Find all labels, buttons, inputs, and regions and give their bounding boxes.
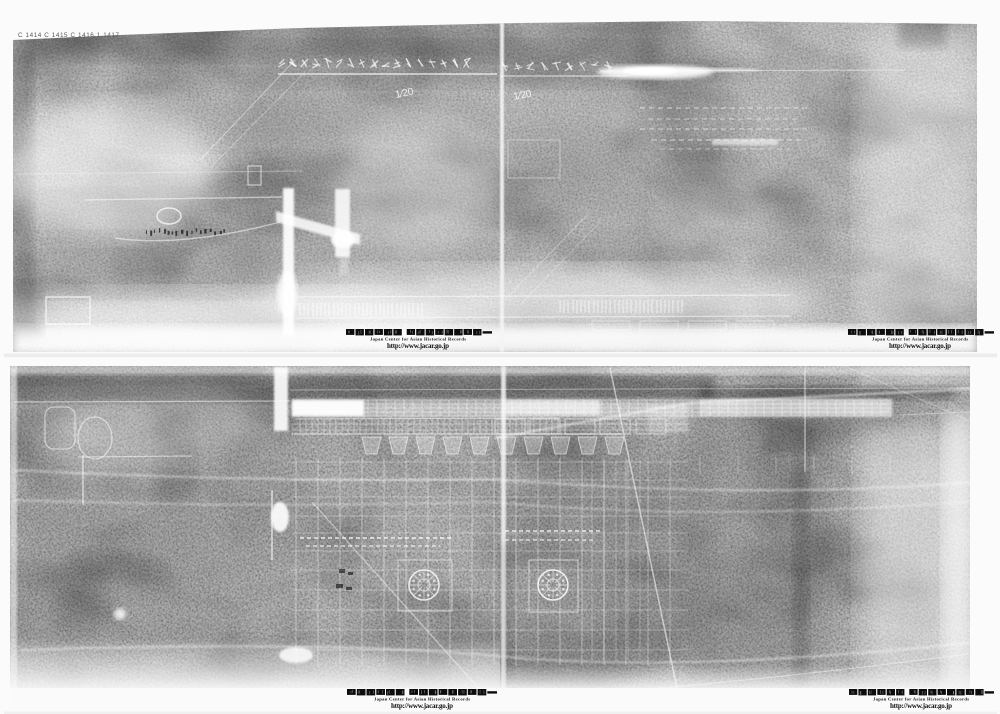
svg-text:Japan Center for Asian Histori: Japan Center for Asian Historical Record… — [873, 696, 969, 701]
svg-text:Japan Center for Asian Histori: Japan Center for Asian Historical Record… — [374, 696, 470, 701]
svg-text:Japan Center for Asian Histori: Japan Center for Asian Historical Record… — [872, 336, 968, 341]
svg-text:http://www.jacar.go.jp: http://www.jacar.go.jp — [387, 342, 449, 350]
svg-text:http://www.jacar.go.jp: http://www.jacar.go.jp — [890, 702, 952, 710]
svg-text:C 1414 C 1415 C 1416 1 1417: C 1414 C 1415 C 1416 1 1417 — [18, 32, 120, 39]
svg-text:http://www.jacar.go.jp: http://www.jacar.go.jp — [889, 342, 951, 350]
svg-text:http://www.jacar.go.jp: http://www.jacar.go.jp — [391, 702, 453, 710]
svg-text:Japan Center for Asian Histori: Japan Center for Asian Historical Record… — [370, 336, 466, 341]
